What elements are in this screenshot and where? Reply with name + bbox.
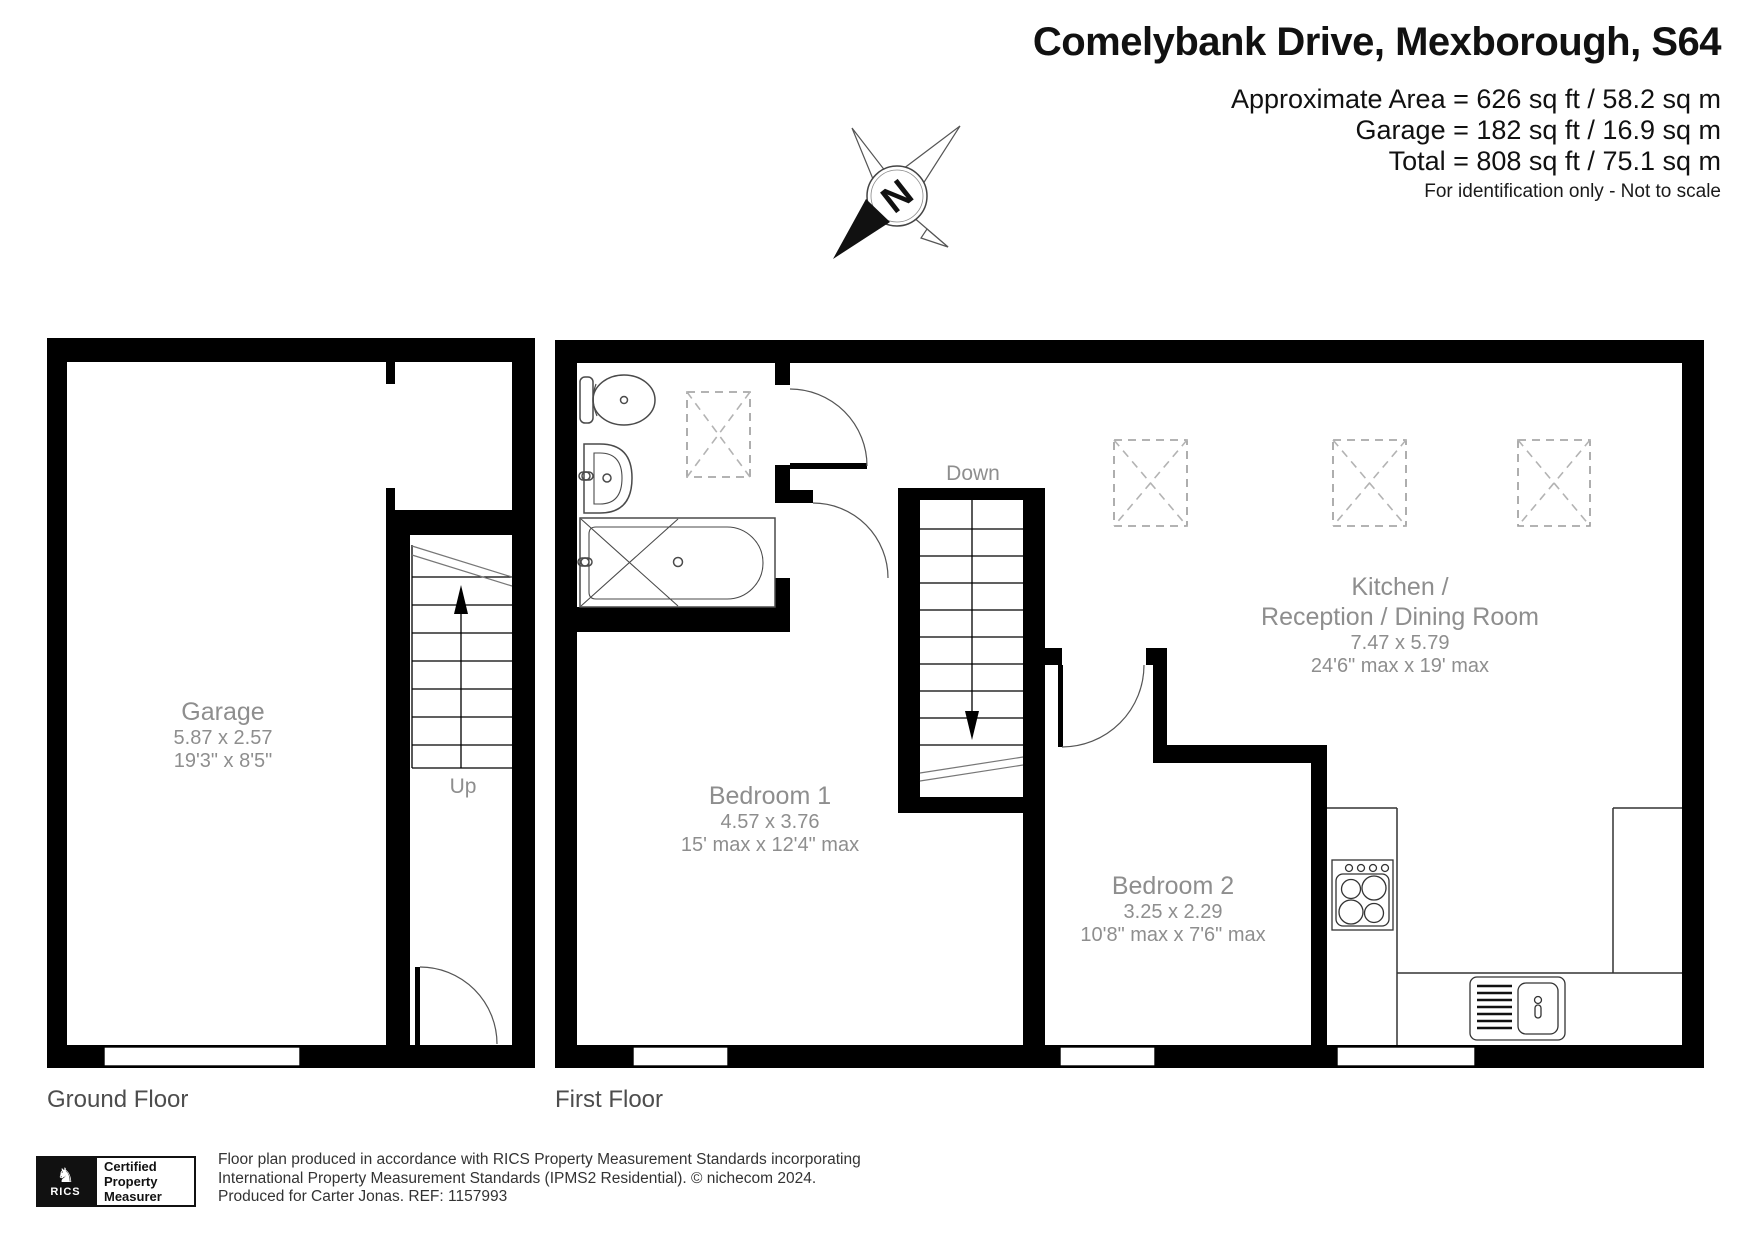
ground-floor-plan xyxy=(47,338,535,1068)
toilet-icon xyxy=(580,375,655,425)
stairs-down xyxy=(920,500,1023,781)
credit-line-2: International Property Measurement Stand… xyxy=(218,1170,861,1189)
garage-area-text: Garage = 182 sq ft / 16.9 sq m xyxy=(1356,115,1721,146)
room-dims-imperial: 10'8" max x 7'6" max xyxy=(1080,924,1265,947)
ground-floor-walls xyxy=(47,338,535,1068)
room-name-line1: Kitchen / xyxy=(1261,572,1539,602)
approximate-area-text: Approximate Area = 626 sq ft / 58.2 sq m xyxy=(1231,84,1721,115)
scale-disclaimer: For identification only - Not to scale xyxy=(1424,181,1721,203)
page-title: Comelybank Drive, Mexborough, S64 xyxy=(1033,20,1721,65)
room-dims-metric: 3.25 x 2.29 xyxy=(1080,901,1265,924)
room-dims-imperial: 19'3" x 8'5" xyxy=(174,750,273,773)
bedroom1-label: Bedroom 1 4.57 x 3.76 15' max x 12'4" ma… xyxy=(681,781,859,857)
compass-north-icon: N xyxy=(833,126,960,259)
credit-line-1: Floor plan produced in accordance with R… xyxy=(218,1151,861,1170)
room-name: Bedroom 2 xyxy=(1080,871,1265,901)
hob-icon xyxy=(1332,860,1393,930)
bedroom1-window xyxy=(633,1047,728,1066)
kitchen-window xyxy=(1337,1047,1475,1066)
skylights xyxy=(687,392,1590,526)
rics-lion-icon: ♞ xyxy=(57,1166,75,1186)
rics-logo: ♞ RICS xyxy=(36,1156,95,1207)
room-dims-imperial: 24'6" max x 19' max xyxy=(1261,655,1539,678)
bedroom2-label: Bedroom 2 3.25 x 2.29 10'8" max x 7'6" m… xyxy=(1080,871,1265,947)
bathroom-fixtures xyxy=(578,375,775,607)
room-dims-metric: 5.87 x 2.57 xyxy=(174,727,273,750)
bedroom2-window xyxy=(1060,1047,1155,1066)
bathroom-skylight xyxy=(687,392,750,477)
credit-line-3: Produced for Carter Jonas. REF: 1157993 xyxy=(218,1188,861,1207)
ground-front-door xyxy=(415,967,497,1045)
stairs-down-label: Down xyxy=(946,462,1000,486)
kitchen-skylight-2 xyxy=(1333,440,1406,526)
ground-floor-label: Ground Floor xyxy=(47,1086,188,1114)
floorplan-page: N xyxy=(0,0,1755,1241)
kitchen-fixtures xyxy=(1327,808,1682,1045)
first-floor-walls xyxy=(555,340,1704,1068)
footer-credit-text: Floor plan produced in accordance with R… xyxy=(218,1151,861,1207)
certified-property-measurer-badge: Certified Property Measurer xyxy=(95,1156,196,1207)
stairs-up xyxy=(412,545,512,768)
room-name-line2: Reception / Dining Room xyxy=(1261,602,1539,632)
kitchen-label: Kitchen / Reception / Dining Room 7.47 x… xyxy=(1261,572,1539,678)
bedroom2-door xyxy=(1058,665,1144,747)
room-name: Bedroom 1 xyxy=(681,781,859,811)
sink-icon xyxy=(579,444,632,513)
rics-brand-text: RICS xyxy=(50,1186,80,1198)
room-dims-metric: 4.57 x 3.76 xyxy=(681,811,859,834)
stairs-up-label: Up xyxy=(450,775,477,799)
first-floor-label: First Floor xyxy=(555,1086,663,1114)
bathtub-icon xyxy=(578,518,775,607)
cert-line-2: Property xyxy=(104,1174,194,1189)
total-area-text: Total = 808 sq ft / 75.1 sq m xyxy=(1389,146,1721,177)
garage-label: Garage 5.87 x 2.57 19'3" x 8'5" xyxy=(174,697,273,773)
cert-line-3: Measurer xyxy=(104,1189,194,1204)
room-dims-imperial: 15' max x 12'4" max xyxy=(681,834,859,857)
kitchen-skylight-3 xyxy=(1518,440,1590,526)
first-floor-plan xyxy=(555,340,1704,1068)
kitchen-skylight-1 xyxy=(1114,440,1187,526)
landing-door xyxy=(813,503,888,578)
garage-door-window xyxy=(104,1047,300,1066)
room-dims-metric: 7.47 x 5.79 xyxy=(1261,632,1539,655)
bathroom-door xyxy=(790,389,867,469)
room-name: Garage xyxy=(174,697,273,727)
sink-unit-icon xyxy=(1470,977,1565,1040)
cert-line-1: Certified xyxy=(104,1159,194,1174)
